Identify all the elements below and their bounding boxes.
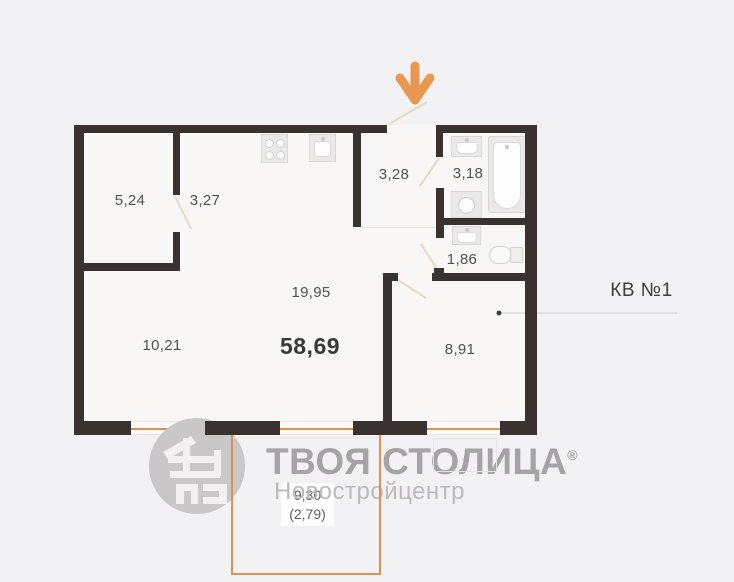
basin	[457, 232, 477, 243]
window-right	[427, 421, 500, 435]
door-swing-entrance	[389, 102, 427, 124]
drum-ring	[458, 197, 475, 214]
room-area-bathroom: 3,18	[438, 165, 498, 182]
toilet-bowl	[489, 246, 512, 264]
entrance-arrow-icon	[400, 66, 430, 100]
window-left	[131, 421, 205, 435]
burner	[276, 151, 285, 160]
room-area-entry-hall: 3,28	[364, 166, 424, 183]
faucet-dot	[465, 138, 469, 142]
kitchen-sink-icon	[309, 134, 336, 162]
neighbour-balcony-outline	[434, 439, 497, 472]
wall-bottom-pier-c	[353, 421, 427, 435]
registered-mark: ®	[567, 447, 578, 463]
wall-bath-wc-divider	[436, 218, 525, 225]
window-glass-line	[427, 428, 500, 430]
toilet-tank	[510, 247, 523, 263]
washbasin-icon	[451, 136, 482, 157]
room-area-corridor: 3,27	[175, 192, 235, 209]
wall-top-main	[74, 125, 387, 133]
wall-wardrobe-right-top	[173, 133, 180, 195]
wall-left-outer	[74, 125, 84, 435]
basin	[456, 142, 478, 154]
entrance-threshold	[387, 125, 436, 133]
balcony-area: 9,30	[281, 486, 334, 505]
brand-watermark: ТВОЯ СТОЛИЦА®	[266, 441, 578, 483]
wall-top-bathroom	[436, 125, 537, 133]
wall-kitchen-divider	[353, 133, 361, 227]
sink-basin	[314, 141, 331, 157]
wall-bedroom-divider-nub	[383, 273, 398, 281]
window-glass-line	[131, 428, 205, 430]
apartment-number-label: КВ №1	[604, 280, 679, 302]
brand-name: ТВОЯ СТОЛИЦА	[266, 441, 567, 482]
washing-machine-icon	[451, 191, 482, 218]
wall-bedroom-divider	[383, 273, 392, 421]
wall-bath-left-mid	[436, 188, 444, 238]
total-area-label: 58,69	[270, 333, 350, 360]
burner	[265, 139, 274, 148]
balcony-area-box: 9,30 (2,79)	[281, 483, 334, 526]
burner	[276, 139, 285, 148]
faucet-dot	[505, 145, 509, 149]
floor-plan: 5,24 3,27 3,28 3,18 1,86 19,95 10,21 8,9…	[0, 0, 734, 582]
stove-icon	[261, 134, 288, 163]
room-area-kitchen-living: 19,95	[281, 284, 341, 301]
wall-wc-bottom	[432, 273, 537, 281]
wall-bottom-pier-a	[74, 421, 131, 435]
window-glass-line	[280, 428, 353, 430]
balcony-area-reduced: (2,79)	[281, 505, 334, 524]
zone-threshold-line	[361, 227, 436, 228]
room-area-wardrobe: 5,24	[100, 192, 160, 209]
window-balcony-door	[280, 421, 353, 435]
toilet-icon	[489, 246, 523, 264]
burner	[265, 151, 274, 160]
faucet-dot	[465, 228, 469, 232]
room-area-wc: 1,86	[432, 251, 492, 268]
room-area-bedroom: 8,91	[430, 341, 490, 358]
logo-glyph	[163, 436, 227, 504]
wall-bottom-pier-b	[205, 421, 280, 435]
room-area-sleeping-zone: 10,21	[132, 337, 192, 354]
wall-bath-left-top	[436, 125, 443, 157]
wall-wardrobe-bottom	[80, 263, 180, 271]
wall-bottom-pier-d	[500, 421, 537, 435]
wc-sink-icon	[452, 226, 481, 245]
faucet-dot	[321, 137, 325, 141]
